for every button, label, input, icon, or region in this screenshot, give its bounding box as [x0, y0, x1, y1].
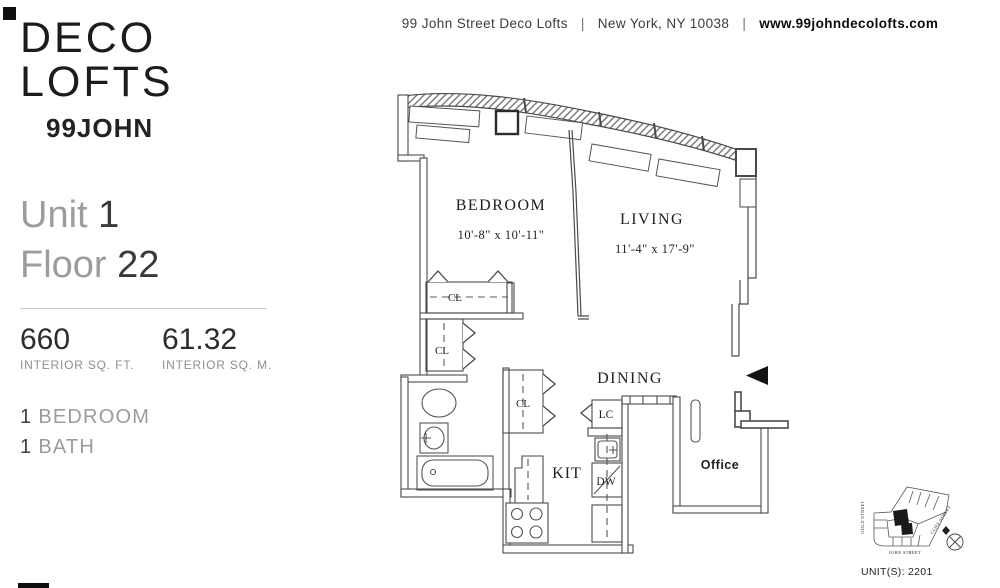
divider-rule: [20, 308, 267, 309]
kitchen-label: KIT: [552, 465, 582, 482]
entry-arrow-icon: [746, 366, 768, 385]
bath-count-line: 1BATH: [20, 432, 150, 462]
street-label-john: JOHN STREET: [889, 550, 921, 555]
bottom-corner-mark-icon: [18, 583, 49, 588]
living-label: LIVING: [620, 211, 684, 228]
sqft-value: 660: [20, 324, 134, 356]
brand-logo: DECO LOFTS 99JOHN: [20, 16, 174, 144]
floor-label: Floor: [20, 244, 107, 286]
header-strip: 99 John Street Deco Lofts | New York, NY…: [340, 16, 1000, 31]
brand-line-3: 99JOHN: [46, 113, 174, 144]
brand-line-2: LOFTS: [20, 60, 174, 104]
bed-count: 1: [20, 406, 32, 428]
highlighted-unit: [893, 509, 909, 526]
closets: [426, 282, 543, 433]
corner-mark-icon: [3, 7, 16, 20]
header-website: www.99johndecolofts.com: [759, 16, 938, 31]
kitchen-counter: [515, 456, 543, 503]
street-label-gold: GOLD STREET: [860, 500, 865, 533]
bath-count: 1: [20, 436, 32, 458]
bath-label: BATH: [38, 436, 95, 458]
area-sqm: 61.32 INTERIOR SQ. M.: [162, 324, 272, 372]
bedroom-count-line: 1BEDROOM: [20, 402, 150, 432]
keymap-caption: UNIT(S): 2201: [861, 566, 933, 578]
dishwasher-label: DW: [596, 476, 615, 488]
header-address: 99 John Street Deco Lofts: [402, 16, 568, 31]
room-divider-wall: [569, 130, 589, 319]
closet-label-hall: CL: [435, 345, 449, 357]
unit-label: Unit: [20, 194, 88, 236]
sqm-value: 61.32: [162, 324, 272, 356]
floor-number: 22: [117, 244, 159, 286]
linen-closet-label: LC: [599, 409, 614, 421]
office-label: Office: [701, 458, 739, 472]
shelf: [588, 428, 622, 436]
toilet: [422, 389, 456, 417]
bathroom-fixtures: [417, 389, 493, 490]
header-separator: |: [742, 16, 746, 31]
building-key-map: GOLD STREET JOHN STREET CLIFF STREET UNI…: [845, 480, 975, 585]
dining-label: DINING: [597, 370, 663, 387]
unit-line: Unit 1: [20, 190, 159, 240]
bed-bath-summary: 1BEDROOM 1BATH: [20, 402, 150, 462]
header-separator: |: [581, 16, 585, 31]
sqm-label: INTERIOR SQ. M.: [162, 358, 272, 372]
header-city: New York, NY 10038: [598, 16, 730, 31]
area-sqft: 660 INTERIOR SQ. FT.: [20, 324, 134, 372]
floorplan-drawing: BEDROOM 10'-8" x 10'-11" LIVING 11'-4" x…: [390, 80, 802, 562]
column: [496, 111, 518, 134]
unit-number: 1: [98, 194, 119, 236]
sqft-label: INTERIOR SQ. FT.: [20, 358, 134, 372]
closet-label-kitchen: CL: [516, 398, 530, 410]
floor-line: Floor 22: [20, 240, 159, 290]
office-radiator: [691, 400, 700, 442]
floorplan-sheet: DECO LOFTS 99JOHN 99 John Street Deco Lo…: [0, 0, 1000, 588]
bed-label: BEDROOM: [38, 406, 150, 428]
bathtub: [417, 456, 493, 490]
bedroom-label: BEDROOM: [456, 197, 547, 214]
bedroom-dims: 10'-8" x 10'-11": [458, 228, 545, 242]
unit-info: Unit 1 Floor 22: [20, 190, 159, 290]
right-wall: [732, 149, 756, 356]
closet-label-bedroom: CL: [448, 292, 462, 304]
stove: [506, 503, 548, 543]
compass-icon: [942, 526, 963, 550]
brand-line-1: DECO: [20, 16, 174, 60]
room-labels: BEDROOM 10'-8" x 10'-11" LIVING 11'-4" x…: [435, 197, 739, 488]
walls: [398, 95, 788, 553]
living-dims: 11'-4" x 17'-9": [615, 242, 695, 256]
highlighted-unit: [901, 523, 913, 535]
bathroom-sink: [420, 423, 448, 453]
